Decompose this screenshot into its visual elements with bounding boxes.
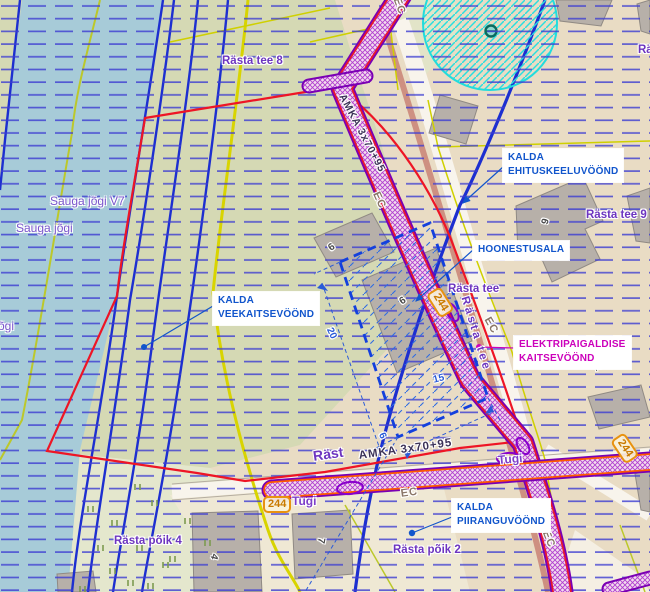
annotation-elektripaigaldise-kaitsevoond: ELEKTRIPAIGALDISE KAITSEVÖÖND <box>514 336 631 369</box>
annotation-line: KALDA <box>508 151 618 165</box>
annotation-line: EHITUSKEELUVÖÖND <box>508 165 618 179</box>
pole-badge-244: 244 <box>263 496 291 513</box>
map-drawing <box>0 0 650 592</box>
annotation-ehituskeeluvoond: KALDA EHITUSKEELUVÖÖND <box>503 149 623 182</box>
annotation-veekaitsevoond: KALDA VEEKAITSEVÖÖND <box>213 292 319 325</box>
annotation-line: KALDA <box>218 294 314 308</box>
annotation-hoonestusala: HOONESTUSALA <box>473 241 569 260</box>
annotation-line: KALDA <box>457 501 545 515</box>
annotation-line: KAITSEVÖÖND <box>519 352 626 366</box>
map-canvas[interactable]: Rästa tee 8 Rästa tee 9 Rä Rästa tee Räs… <box>0 0 650 592</box>
annotation-line: ELEKTRIPAIGALDISE <box>519 338 626 352</box>
annotation-piiranguvoond: KALDA PIIRANGUVÖÖND <box>452 499 550 532</box>
annotation-line: VEEKAITSEVÖÖND <box>218 308 314 322</box>
annotation-line: HOONESTUSALA <box>478 243 564 257</box>
annotation-line: PIIRANGUVÖÖND <box>457 515 545 529</box>
